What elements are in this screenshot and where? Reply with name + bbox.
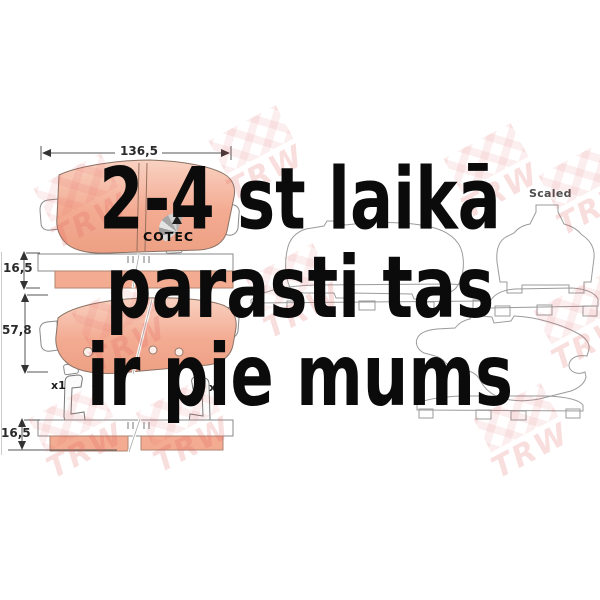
quantity-left-clip: x1	[51, 379, 66, 392]
outline-strip-tab	[566, 409, 580, 418]
outline-pad-center	[286, 221, 464, 299]
product-image: COTEC 136,5 16,5 57,8 16,5 x1 x1 Scaled …	[0, 0, 600, 600]
backplate-surface	[56, 298, 236, 374]
outline-strip-bottom	[417, 396, 583, 411]
scaled-outline-drawings	[251, 205, 598, 420]
rivet-hole	[175, 348, 183, 356]
friction-strip	[55, 271, 233, 288]
dimension-pad-width: 136,5	[117, 144, 161, 158]
rivet-hole	[149, 346, 157, 354]
brake-pad-front-view	[40, 160, 239, 256]
brake-pad-technical-drawing	[0, 0, 600, 600]
friction-strip	[50, 436, 128, 451]
scaled-label: Scaled	[529, 187, 572, 200]
dimension-pad-height: 57,8	[2, 323, 32, 337]
pad-side-view-bottom	[38, 419, 233, 452]
dimension-thickness-top: 16,5	[3, 261, 33, 275]
dimension-thickness-bottom: 16,5	[1, 426, 31, 440]
brake-pad-rear-view	[40, 298, 239, 375]
outline-strip-tab	[583, 306, 597, 316]
quantity-right-clip: x1	[209, 381, 224, 394]
pad-left-ear	[40, 321, 58, 351]
outline-strip-tab	[476, 410, 491, 419]
outline-strip-tab	[511, 411, 526, 420]
outline-pad-right	[497, 205, 594, 293]
pad-side-view-top	[38, 254, 233, 288]
outline-pad-bottom	[416, 315, 589, 401]
pad-left-ear	[40, 199, 59, 230]
wear-clip-left	[64, 375, 85, 423]
cotec-logo-text: COTEC	[143, 229, 194, 244]
cotec-logo: COTEC	[143, 212, 209, 250]
outline-strip-tab	[419, 302, 434, 311]
wear-clip-right	[189, 377, 210, 425]
rivet-hole	[84, 348, 93, 357]
friction-strip	[141, 436, 223, 450]
